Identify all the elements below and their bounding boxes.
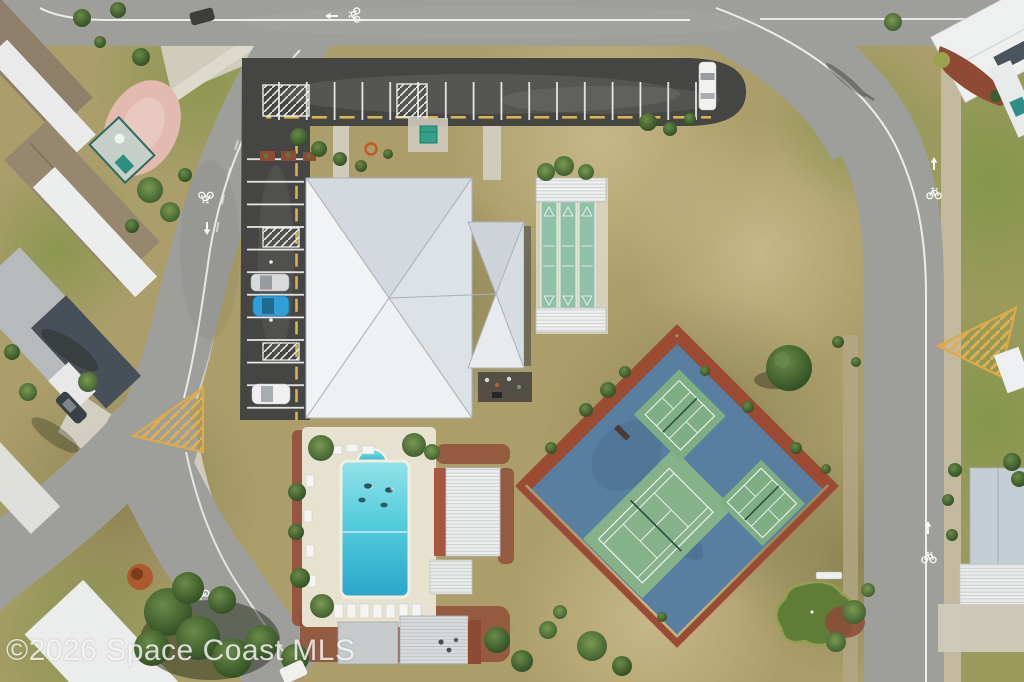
parked-blue-car [253,296,289,316]
large-round-tree [766,345,812,391]
shuffleboard-courts [536,178,608,334]
driveway [938,604,1024,652]
no-parking-hatch [263,85,309,116]
parked-white-car-left [252,384,290,404]
clubhouse-east-shadow [524,226,531,366]
clubhouse-patio [478,372,532,402]
swimming-pool [341,449,409,597]
pool-area [292,427,514,664]
parked-silver-car [251,274,289,291]
aerial-photo: ©2026 Space Coast MLS [0,0,1024,682]
pool-house [338,616,481,664]
no-parking-hatch [263,228,299,247]
mls-watermark: ©2026 Space Coast MLS [6,634,355,668]
shuffleboard-lanes [541,202,595,308]
bench [816,572,842,579]
no-parking-hatch [263,343,299,360]
parked-white-car-top [699,62,716,110]
no-parking-hatch [397,84,427,117]
utility-shed [408,118,448,152]
